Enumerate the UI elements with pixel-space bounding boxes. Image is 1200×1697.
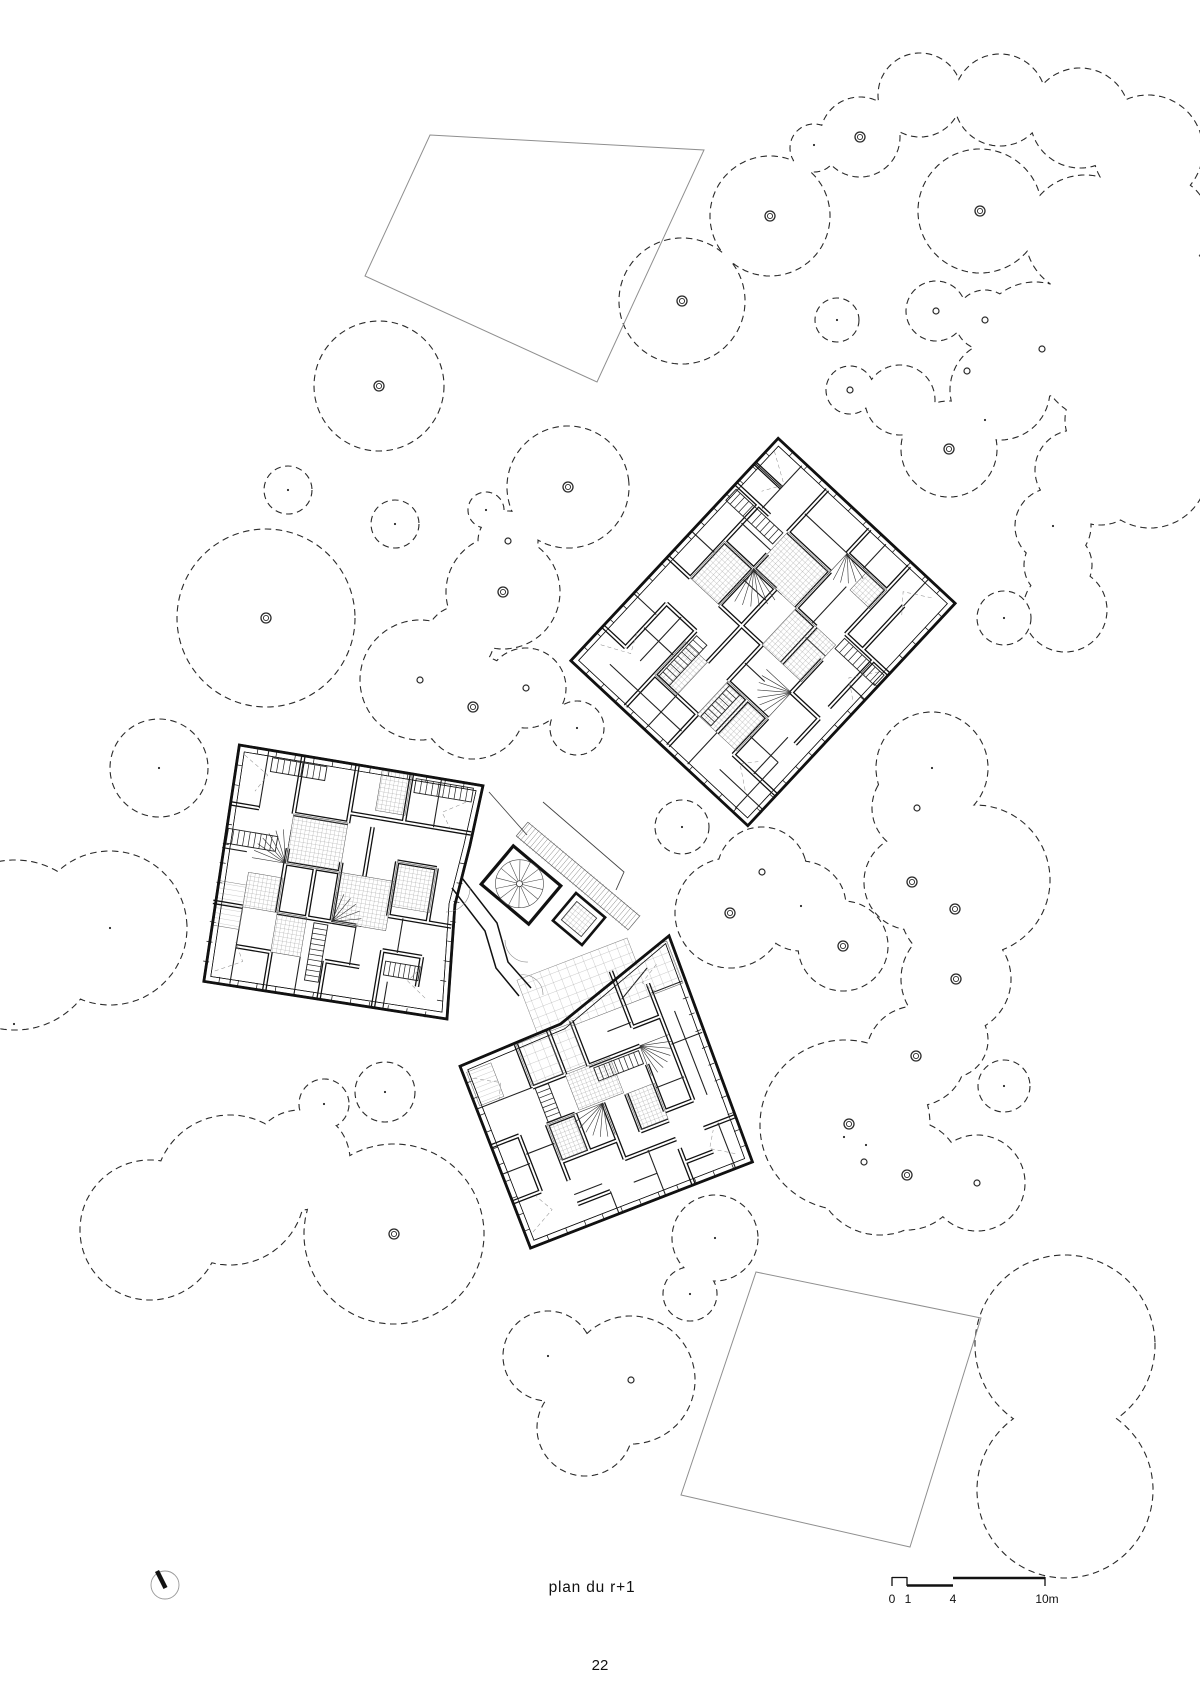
svg-text:0: 0 — [889, 1592, 896, 1606]
svg-text:4: 4 — [950, 1592, 957, 1606]
svg-text:22: 22 — [592, 1657, 609, 1674]
svg-text:plan du r+1: plan du r+1 — [549, 1579, 636, 1596]
svg-text:10m: 10m — [1035, 1592, 1058, 1606]
svg-text:1: 1 — [905, 1592, 912, 1606]
